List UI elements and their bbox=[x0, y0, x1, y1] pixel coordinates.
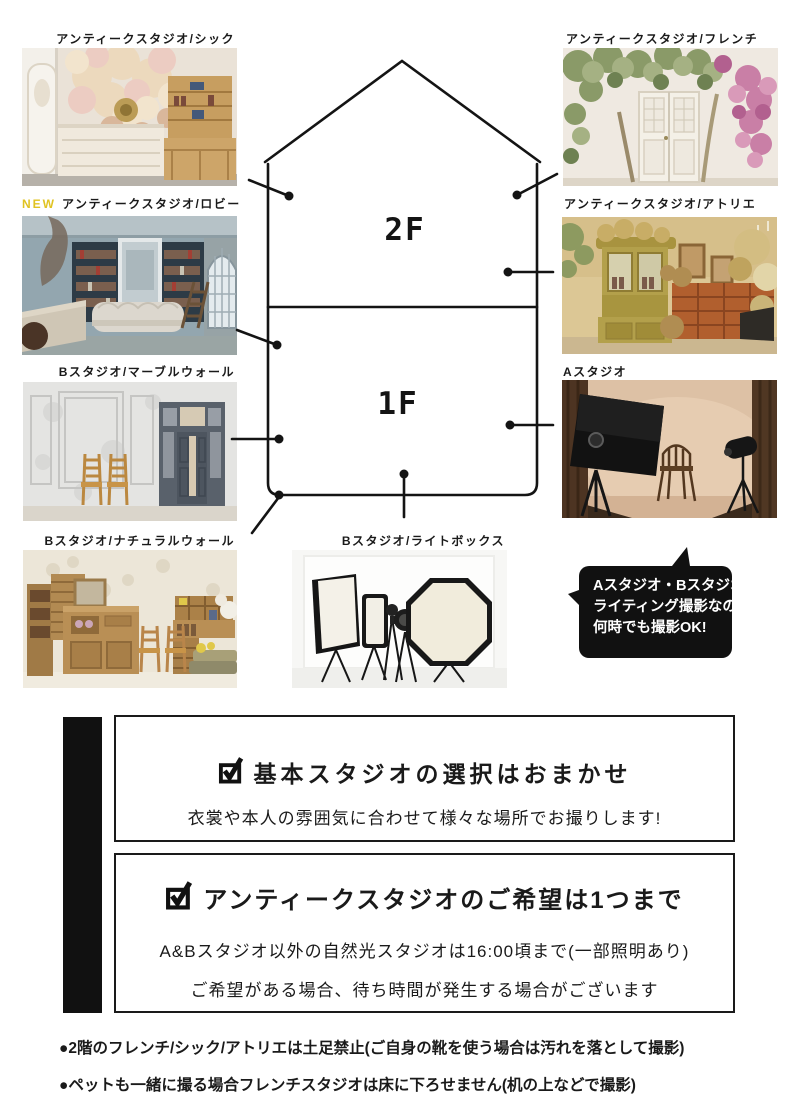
studio-label-a-studio: Aスタジオ bbox=[563, 364, 778, 380]
bubble-line: 何時でも撮影OK! bbox=[593, 618, 732, 639]
studio-label-lightbox: Bスタジオ/ライトボックス bbox=[292, 533, 505, 549]
info-box-title-row: 基本スタジオの選択はおまかせ bbox=[116, 753, 733, 791]
info-box-basic-studio: 基本スタジオの選択はおまかせ 衣裳や本人の雰囲気に合わせて様々な場所でお撮りしま… bbox=[114, 715, 735, 842]
studio-label-natural: Bスタジオ/ナチュラルウォール bbox=[23, 533, 235, 549]
footer-notes: ●2階のフレンチ/シック/アトリエは土足禁止(ご自身の靴を使う場合は汚れを落とし… bbox=[59, 1030, 779, 1104]
new-badge: NEW bbox=[22, 197, 56, 211]
bubble-line: ライティング撮影なので bbox=[593, 597, 732, 618]
info-box-title: 基本スタジオの選択はおまかせ bbox=[254, 755, 632, 789]
studio-photo-a-studio bbox=[562, 380, 777, 518]
studio-label-lobby: NEWアンティークスタジオ/ロビー bbox=[22, 196, 235, 212]
checkbox-check-icon bbox=[218, 753, 245, 791]
floor-label-1f: 1F bbox=[363, 386, 433, 422]
studio-photo-lightbox bbox=[292, 550, 507, 688]
speech-bubble: Aスタジオ・Bスタジオは ライティング撮影なので 何時でも撮影OK! bbox=[579, 566, 732, 658]
studio-label-marble: Bスタジオ/マーブルウォール bbox=[23, 364, 235, 380]
floor-label-2f: 2F bbox=[370, 212, 440, 248]
info-box-title: アンティークスタジオのご希望は1つまで bbox=[203, 880, 683, 915]
studio-photo-natural bbox=[23, 550, 237, 688]
info-box-title-row: アンティークスタジオのご希望は1つまで bbox=[116, 877, 733, 917]
studio-floor-guide: アンティークスタジオ/シック アンティークスタジオ/フレンチ NEWアンティーク… bbox=[0, 0, 800, 1104]
studio-photo-chic bbox=[22, 48, 237, 186]
studio-photo-atelier bbox=[562, 217, 777, 354]
info-box-body: A&Bスタジオ以外の自然光スタジオは16:00頃まで(一部照明あり) ご希望があ… bbox=[116, 932, 733, 1010]
info-box-body-line: ご希望がある場合、待ち時間が発生する場合がございます bbox=[116, 971, 733, 1010]
info-box-antique-request: アンティークスタジオのご希望は1つまで A&Bスタジオ以外の自然光スタジオは16… bbox=[114, 853, 735, 1013]
side-accent-bar bbox=[63, 717, 102, 1013]
studio-photo-marble bbox=[23, 382, 237, 521]
checkbox-check-icon bbox=[165, 877, 194, 917]
info-box-body: 衣裳や本人の雰囲気に合わせて様々な場所でお撮りします! bbox=[116, 804, 733, 829]
bubble-line: Aスタジオ・Bスタジオは bbox=[593, 576, 732, 597]
studio-label-atelier: アンティークスタジオ/アトリエ bbox=[564, 196, 779, 212]
studio-label-french: アンティークスタジオ/フレンチ bbox=[566, 31, 781, 47]
note-line: ●ペットも一緒に撮る場合フレンチスタジオは床に下ろせません(机の上などで撮影) bbox=[59, 1067, 779, 1104]
info-box-body-line: A&Bスタジオ以外の自然光スタジオは16:00頃まで(一部照明あり) bbox=[116, 932, 733, 971]
note-line: ●2階のフレンチ/シック/アトリエは土足禁止(ご自身の靴を使う場合は汚れを落とし… bbox=[59, 1030, 779, 1067]
studio-photo-lobby bbox=[22, 216, 237, 355]
studio-photo-french bbox=[563, 48, 778, 186]
studio-label-chic: アンティークスタジオ/シック bbox=[22, 31, 235, 47]
